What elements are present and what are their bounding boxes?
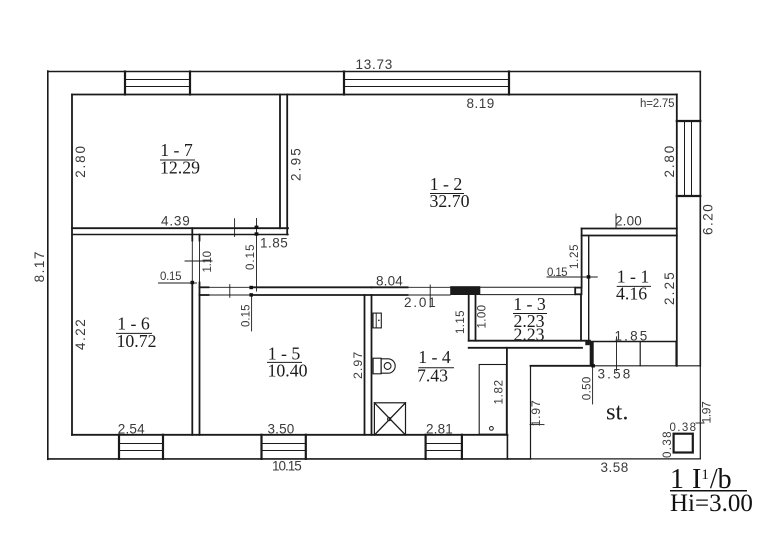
svg-text:1 - 4: 1 - 4 bbox=[418, 347, 451, 367]
svg-text:6.20: 6.20 bbox=[700, 203, 715, 235]
svg-text:2.25: 2.25 bbox=[662, 271, 677, 305]
svg-text:7.43: 7.43 bbox=[417, 366, 448, 386]
svg-text:Hi=3.00: Hi=3.00 bbox=[670, 490, 753, 517]
svg-text:10.15: 10.15 bbox=[272, 459, 303, 474]
svg-text:1.10: 1.10 bbox=[202, 251, 214, 273]
svg-text:2.97: 2.97 bbox=[351, 351, 365, 379]
svg-text:0.15: 0.15 bbox=[160, 271, 182, 283]
svg-text:3.50: 3.50 bbox=[268, 421, 296, 436]
svg-text:4.39: 4.39 bbox=[161, 214, 191, 229]
svg-text:1.15: 1.15 bbox=[455, 310, 467, 334]
svg-text:1.85: 1.85 bbox=[260, 236, 289, 251]
svg-text:2.80: 2.80 bbox=[73, 145, 88, 178]
svg-text:2.00: 2.00 bbox=[615, 214, 643, 229]
svg-text:st.: st. bbox=[606, 399, 628, 426]
svg-text:2.95: 2.95 bbox=[288, 147, 303, 181]
svg-text:10.72: 10.72 bbox=[116, 331, 156, 351]
svg-text:1.00: 1.00 bbox=[477, 305, 489, 329]
svg-text:4.16: 4.16 bbox=[616, 284, 647, 304]
svg-text:1.82: 1.82 bbox=[494, 380, 506, 405]
svg-text:0.15: 0.15 bbox=[241, 304, 253, 327]
svg-text:8.04: 8.04 bbox=[376, 274, 404, 289]
svg-text:13.73: 13.73 bbox=[356, 57, 394, 72]
svg-text:2.01: 2.01 bbox=[404, 295, 437, 310]
svg-text:1.97: 1.97 bbox=[700, 401, 714, 424]
svg-text:h=2.75: h=2.75 bbox=[640, 98, 675, 110]
svg-text:0.38: 0.38 bbox=[662, 431, 674, 458]
svg-text:10.40: 10.40 bbox=[267, 361, 307, 381]
svg-text:2.54: 2.54 bbox=[118, 421, 146, 436]
svg-text:2.23: 2.23 bbox=[513, 325, 544, 345]
svg-text:8.19: 8.19 bbox=[467, 96, 496, 111]
svg-text:2.80: 2.80 bbox=[662, 145, 677, 178]
svg-text:0.15: 0.15 bbox=[245, 244, 257, 270]
svg-text:12.29: 12.29 bbox=[160, 158, 200, 178]
svg-text:1.85: 1.85 bbox=[615, 329, 649, 344]
svg-text:32.70: 32.70 bbox=[429, 191, 469, 211]
svg-text:8.17: 8.17 bbox=[32, 250, 47, 282]
svg-text:1.25: 1.25 bbox=[569, 244, 581, 269]
svg-text:2.81: 2.81 bbox=[426, 421, 454, 436]
svg-text:0.50: 0.50 bbox=[582, 376, 594, 400]
svg-text:1.97: 1.97 bbox=[529, 400, 543, 427]
svg-text:0.15: 0.15 bbox=[547, 267, 568, 279]
svg-text:4.22: 4.22 bbox=[73, 318, 88, 350]
svg-text:3.58: 3.58 bbox=[598, 367, 632, 382]
svg-text:3.58: 3.58 bbox=[601, 460, 630, 475]
